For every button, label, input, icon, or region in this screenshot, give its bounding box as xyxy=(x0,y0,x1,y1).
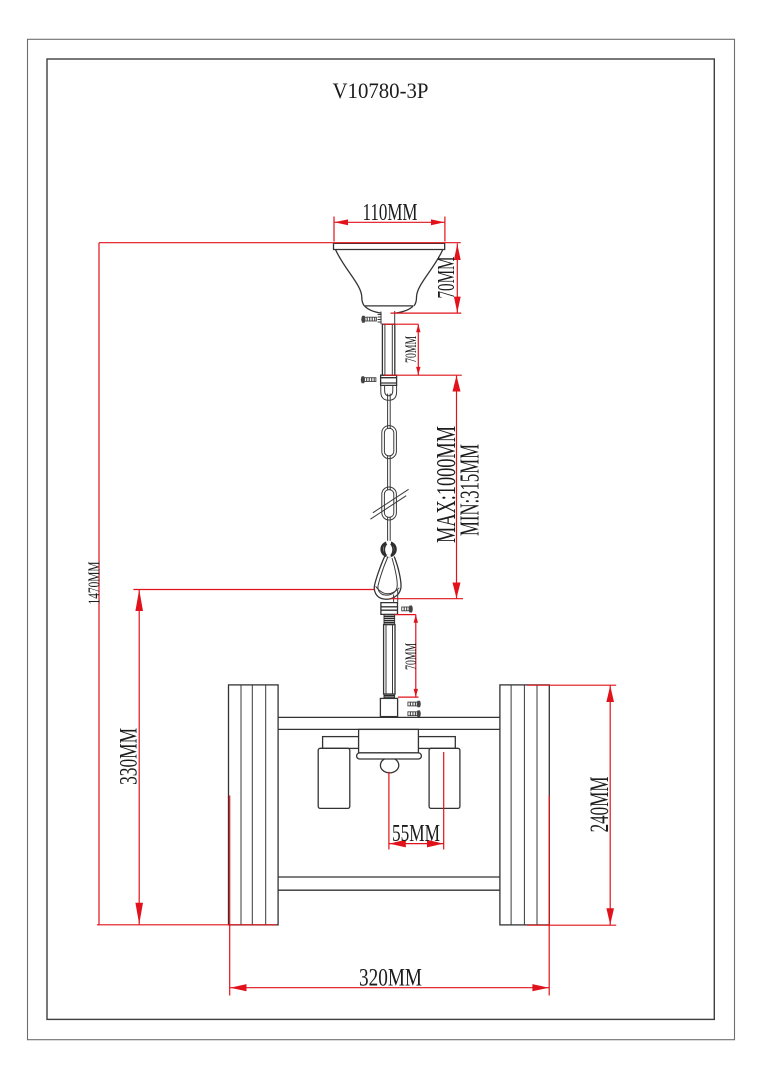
svg-text:320MM: 320MM xyxy=(359,965,422,992)
svg-text:70MM: 70MM xyxy=(434,257,460,299)
svg-text:70MM: 70MM xyxy=(403,643,420,670)
svg-text:240MM: 240MM xyxy=(585,776,614,832)
svg-text:V10780-3P: V10780-3P xyxy=(333,78,429,103)
svg-text:330MM: 330MM xyxy=(116,728,143,785)
svg-text:55MM: 55MM xyxy=(392,821,440,847)
svg-text:1470MM: 1470MM xyxy=(85,562,104,605)
svg-text:MIN:315MM: MIN:315MM xyxy=(455,444,485,536)
svg-text:70MM: 70MM xyxy=(403,336,420,363)
svg-text:110MM: 110MM xyxy=(363,200,418,226)
